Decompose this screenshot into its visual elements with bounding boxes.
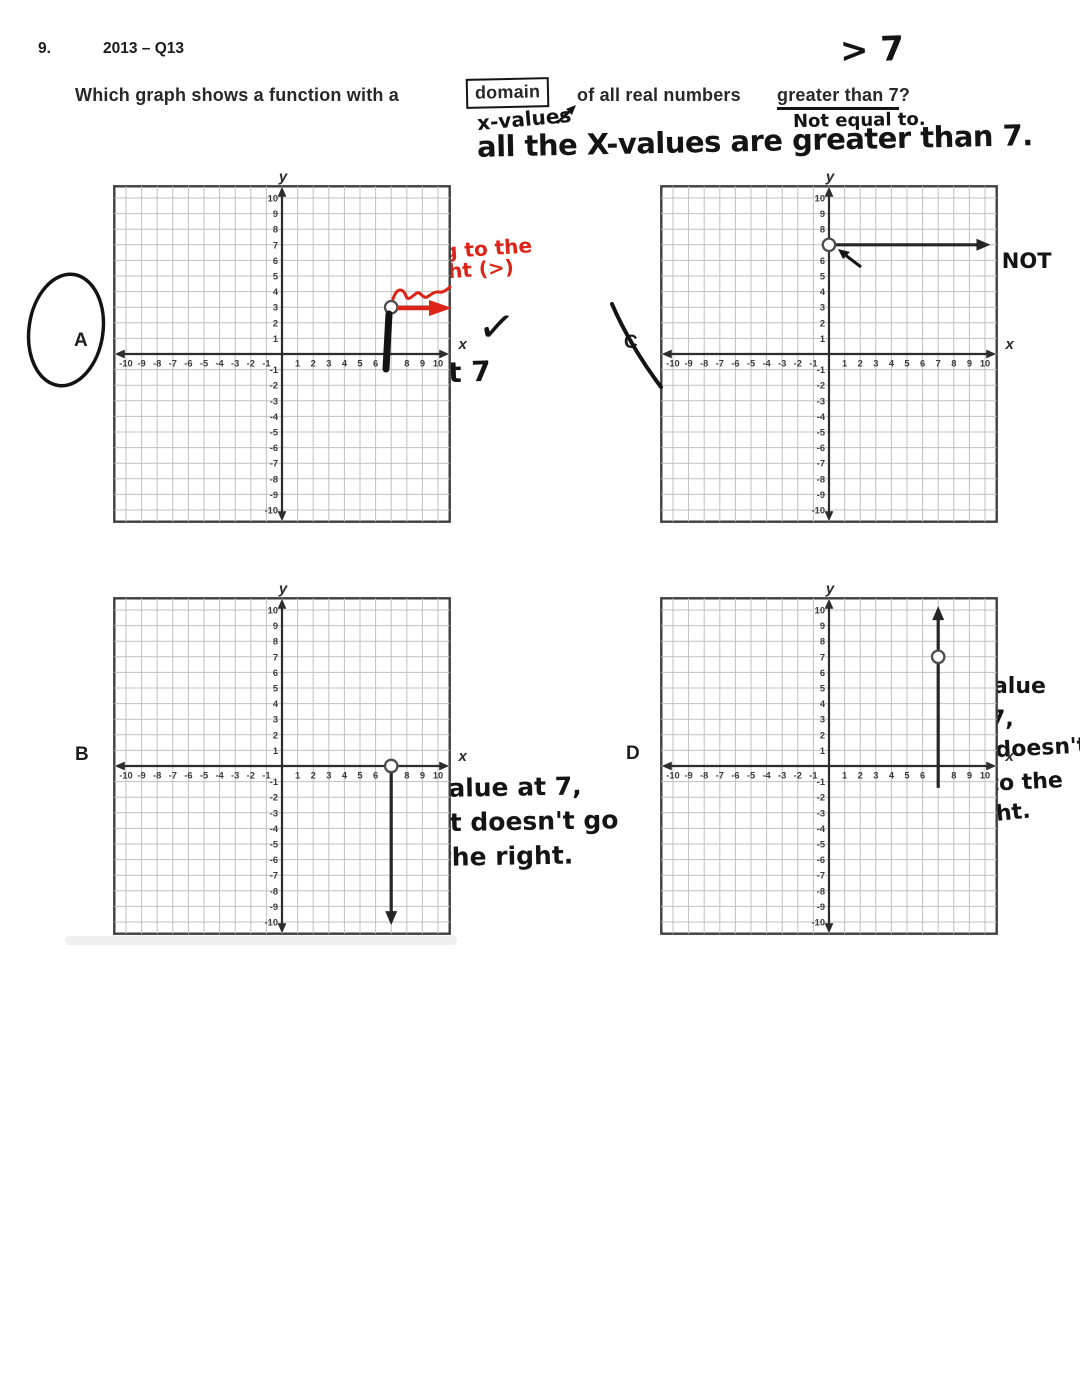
annotation-summary: all the X-values are greater than 7.: [477, 121, 1033, 162]
svg-text:-6: -6: [184, 771, 192, 781]
svg-text:-8: -8: [700, 359, 708, 369]
svg-text:-4: -4: [215, 771, 224, 781]
svg-text:2: 2: [858, 771, 863, 781]
svg-text:x: x: [458, 336, 468, 353]
grid-plot-c: -10-10-9-9-8-8-7-7-6-6-5-5-4-4-3-3-2-2-1…: [643, 168, 1015, 540]
svg-text:2: 2: [273, 318, 278, 328]
svg-text:-10: -10: [265, 918, 278, 928]
svg-text:-5: -5: [200, 771, 208, 781]
svg-text:-6: -6: [270, 443, 278, 453]
svg-text:1: 1: [820, 746, 825, 756]
svg-text:5: 5: [357, 359, 362, 369]
svg-text:3: 3: [873, 359, 878, 369]
svg-text:5: 5: [820, 272, 825, 282]
svg-text:2: 2: [820, 318, 825, 328]
svg-text:6: 6: [373, 359, 378, 369]
grid-plot-b: -10-10-9-9-8-8-7-7-6-6-5-5-4-4-3-3-2-2-1…: [96, 580, 468, 952]
choice-label-a: A: [74, 330, 88, 352]
svg-text:10: 10: [268, 606, 278, 616]
svg-text:-7: -7: [817, 459, 825, 469]
svg-text:8: 8: [273, 225, 278, 235]
svg-text:10: 10: [268, 194, 278, 204]
svg-text:-9: -9: [684, 359, 692, 369]
svg-text:x: x: [1005, 336, 1015, 353]
svg-text:9: 9: [967, 771, 972, 781]
svg-text:-7: -7: [716, 359, 724, 369]
svg-text:-3: -3: [778, 359, 786, 369]
svg-text:x: x: [458, 748, 468, 765]
svg-text:-2: -2: [794, 771, 802, 781]
question-boxed-word-wrap: domain: [466, 78, 549, 108]
question-mark: ?: [899, 85, 910, 105]
svg-text:-4: -4: [762, 359, 771, 369]
question-code: 2013 – Q13: [103, 40, 184, 58]
domain-box: domain: [466, 77, 550, 109]
svg-text:-8: -8: [153, 359, 161, 369]
svg-text:6: 6: [373, 771, 378, 781]
svg-text:-2: -2: [817, 381, 825, 391]
svg-text:-8: -8: [270, 474, 278, 484]
svg-text:-3: -3: [817, 808, 825, 818]
svg-text:-10: -10: [666, 359, 679, 369]
svg-text:2: 2: [820, 730, 825, 740]
svg-text:6: 6: [273, 668, 278, 678]
question-number: 9.: [38, 40, 51, 58]
svg-text:9: 9: [420, 359, 425, 369]
svg-text:-6: -6: [731, 771, 739, 781]
svg-text:-3: -3: [817, 396, 825, 406]
question-text-part1: Which graph shows a function with a: [75, 85, 399, 106]
svg-text:-1: -1: [270, 777, 278, 787]
svg-text:7: 7: [820, 652, 825, 662]
grid-plot-a: -10-10-9-9-8-8-7-7-6-6-5-5-4-4-3-3-2-2-1…: [96, 168, 468, 540]
svg-text:6: 6: [820, 256, 825, 266]
svg-text:1: 1: [273, 746, 278, 756]
svg-text:2: 2: [858, 359, 863, 369]
svg-text:-7: -7: [817, 871, 825, 881]
svg-text:-1: -1: [270, 365, 278, 375]
checkmark-icon: ✓: [475, 304, 517, 352]
svg-text:y: y: [825, 580, 835, 597]
svg-text:-9: -9: [137, 771, 145, 781]
choice-label-c: C: [624, 332, 638, 354]
svg-text:1: 1: [295, 771, 300, 781]
svg-text:-10: -10: [119, 771, 132, 781]
svg-text:10: 10: [815, 194, 825, 204]
svg-text:10: 10: [433, 359, 443, 369]
svg-text:9: 9: [420, 771, 425, 781]
svg-text:1: 1: [273, 334, 278, 344]
svg-text:3: 3: [820, 303, 825, 313]
svg-text:8: 8: [820, 225, 825, 235]
svg-text:8: 8: [951, 771, 956, 781]
svg-text:3: 3: [873, 771, 878, 781]
svg-text:1: 1: [295, 359, 300, 369]
svg-text:y: y: [278, 168, 288, 185]
svg-text:7: 7: [273, 240, 278, 250]
svg-text:3: 3: [273, 715, 278, 725]
svg-text:2: 2: [273, 730, 278, 740]
svg-text:8: 8: [404, 359, 409, 369]
svg-text:6: 6: [920, 771, 925, 781]
svg-text:-5: -5: [747, 771, 755, 781]
svg-text:9: 9: [820, 209, 825, 219]
svg-text:-1: -1: [817, 777, 825, 787]
worksheet-page: 9. 2013 – Q13 Which graph shows a functi…: [0, 0, 1080, 1397]
svg-text:5: 5: [904, 771, 909, 781]
svg-text:-8: -8: [817, 886, 825, 896]
svg-text:10: 10: [980, 359, 990, 369]
svg-text:6: 6: [273, 256, 278, 266]
svg-text:-4: -4: [817, 824, 826, 834]
svg-text:8: 8: [404, 771, 409, 781]
svg-text:-8: -8: [700, 771, 708, 781]
svg-text:9: 9: [273, 209, 278, 219]
svg-text:10: 10: [980, 771, 990, 781]
svg-text:10: 10: [815, 606, 825, 616]
svg-text:x: x: [1005, 748, 1015, 765]
svg-text:-2: -2: [270, 381, 278, 391]
question-text-tail: greater than 7?: [777, 85, 910, 106]
svg-text:-9: -9: [817, 490, 825, 500]
annotation-greater-than-7: > 7: [839, 32, 904, 68]
svg-text:-4: -4: [817, 412, 826, 422]
svg-text:-1: -1: [817, 365, 825, 375]
svg-text:-9: -9: [817, 902, 825, 912]
svg-text:4: 4: [273, 287, 279, 297]
svg-text:-2: -2: [247, 771, 255, 781]
svg-text:-5: -5: [200, 359, 208, 369]
svg-text:y: y: [825, 168, 835, 185]
svg-text:-8: -8: [270, 886, 278, 896]
svg-text:-10: -10: [119, 359, 132, 369]
svg-text:-10: -10: [265, 506, 278, 516]
choice-label-d: D: [626, 743, 640, 765]
svg-text:-10: -10: [666, 771, 679, 781]
svg-text:-7: -7: [270, 871, 278, 881]
svg-text:-5: -5: [270, 428, 278, 438]
svg-text:-5: -5: [817, 428, 825, 438]
svg-text:4: 4: [820, 699, 826, 709]
svg-text:6: 6: [920, 359, 925, 369]
svg-text:-9: -9: [270, 902, 278, 912]
svg-text:4: 4: [889, 771, 895, 781]
svg-text:4: 4: [342, 359, 348, 369]
svg-text:-3: -3: [270, 396, 278, 406]
svg-text:5: 5: [820, 684, 825, 694]
svg-text:-3: -3: [270, 808, 278, 818]
svg-text:4: 4: [342, 771, 348, 781]
svg-text:-6: -6: [817, 855, 825, 865]
svg-text:-2: -2: [794, 359, 802, 369]
svg-text:-2: -2: [270, 793, 278, 803]
svg-text:-2: -2: [247, 359, 255, 369]
svg-text:5: 5: [904, 359, 909, 369]
svg-text:8: 8: [820, 637, 825, 647]
svg-text:-3: -3: [231, 771, 239, 781]
svg-text:8: 8: [951, 359, 956, 369]
svg-text:3: 3: [326, 359, 331, 369]
svg-text:-3: -3: [778, 771, 786, 781]
svg-text:-8: -8: [153, 771, 161, 781]
svg-text:-7: -7: [169, 359, 177, 369]
svg-text:2: 2: [311, 359, 316, 369]
svg-text:10: 10: [433, 771, 443, 781]
svg-text:-2: -2: [817, 793, 825, 803]
svg-text:-5: -5: [817, 840, 825, 850]
graph-choice-c: -10-10-9-9-8-8-7-7-6-6-5-5-4-4-3-3-2-2-1…: [643, 168, 1015, 540]
svg-text:-7: -7: [169, 771, 177, 781]
svg-text:5: 5: [273, 684, 278, 694]
svg-text:-9: -9: [137, 359, 145, 369]
svg-text:-4: -4: [215, 359, 224, 369]
graph-choice-a: -10-10-9-9-8-8-7-7-6-6-5-5-4-4-3-3-2-2-1…: [96, 168, 468, 540]
svg-text:5: 5: [357, 771, 362, 781]
svg-text:-10: -10: [812, 918, 825, 928]
graph-choice-d: -10-10-9-9-8-8-7-7-6-6-5-5-4-4-3-3-2-2-1…: [643, 580, 1015, 952]
svg-text:9: 9: [967, 359, 972, 369]
svg-text:-9: -9: [684, 771, 692, 781]
question-text-part2: of all real numbers: [577, 85, 741, 106]
svg-text:3: 3: [273, 303, 278, 313]
svg-text:4: 4: [820, 287, 826, 297]
svg-text:4: 4: [889, 359, 895, 369]
svg-text:-4: -4: [270, 824, 279, 834]
svg-text:-3: -3: [231, 359, 239, 369]
svg-text:3: 3: [326, 771, 331, 781]
svg-text:2: 2: [311, 771, 316, 781]
svg-text:-8: -8: [817, 474, 825, 484]
svg-text:1: 1: [842, 359, 847, 369]
svg-text:1: 1: [842, 771, 847, 781]
svg-text:7: 7: [273, 652, 278, 662]
svg-text:3: 3: [820, 715, 825, 725]
svg-text:-6: -6: [270, 855, 278, 865]
svg-text:-7: -7: [270, 459, 278, 469]
svg-text:6: 6: [820, 668, 825, 678]
svg-text:-4: -4: [762, 771, 771, 781]
svg-text:9: 9: [820, 621, 825, 631]
svg-text:-6: -6: [731, 359, 739, 369]
svg-text:-5: -5: [270, 840, 278, 850]
choice-label-b: B: [75, 744, 89, 766]
svg-text:8: 8: [273, 637, 278, 647]
svg-text:-4: -4: [270, 412, 279, 422]
svg-text:9: 9: [273, 621, 278, 631]
svg-text:1: 1: [820, 334, 825, 344]
underlined-phrase: greater than 7: [777, 85, 899, 110]
svg-text:5: 5: [273, 272, 278, 282]
grid-plot-d: -10-10-9-9-8-8-7-7-6-6-5-5-4-4-3-3-2-2-1…: [643, 580, 1015, 952]
svg-text:-6: -6: [817, 443, 825, 453]
svg-text:-10: -10: [812, 506, 825, 516]
svg-text:-5: -5: [747, 359, 755, 369]
svg-text:-7: -7: [716, 771, 724, 781]
svg-text:7: 7: [936, 359, 941, 369]
svg-text:y: y: [278, 580, 288, 597]
svg-text:-6: -6: [184, 359, 192, 369]
svg-text:-9: -9: [270, 490, 278, 500]
svg-text:4: 4: [273, 699, 279, 709]
graph-choice-b: -10-10-9-9-8-8-7-7-6-6-5-5-4-4-3-3-2-2-1…: [96, 580, 468, 952]
